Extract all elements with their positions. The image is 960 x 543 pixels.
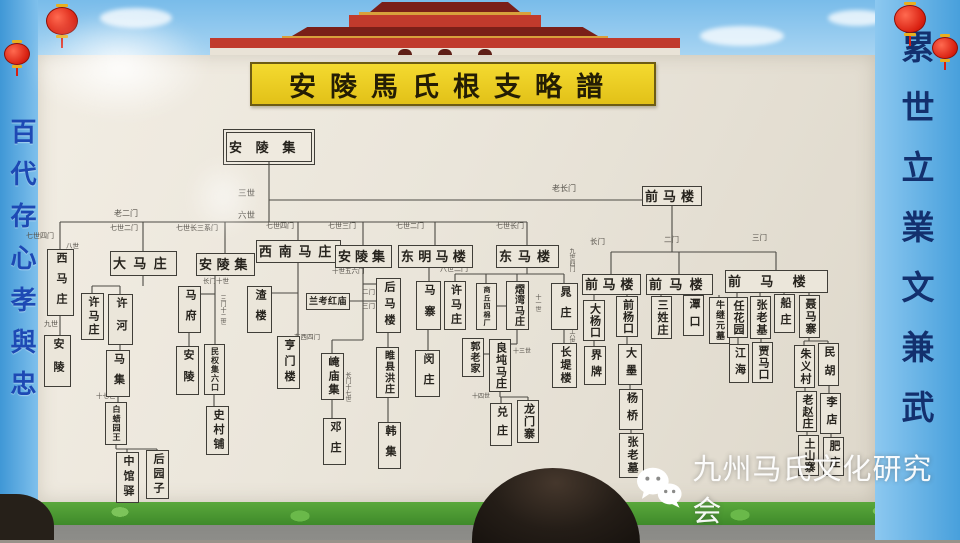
tree-node: 商丘四棉厂 — [476, 283, 497, 330]
tree-node: 白蜡园王 — [105, 402, 127, 445]
generation-label: 长门十七世 — [344, 372, 350, 402]
tree-node: 渣楼 — [247, 286, 272, 333]
tree-node: 前杨口 — [616, 296, 638, 337]
photo-of-genealogy-poster: { "title": "安陵馬氏根支略譜", "banners": { "lef… — [0, 0, 960, 540]
tree-node: 前马楼 — [725, 270, 828, 293]
generation-label: 十三世 — [513, 349, 531, 355]
tree-node: 安陵 — [176, 346, 199, 395]
generation-label: 七世二门 — [396, 223, 424, 230]
tree-node: 民胡 — [818, 343, 839, 386]
tree-node: 安陵 — [44, 335, 71, 387]
tree-node: 李店 — [820, 393, 841, 434]
watermark-text: 九州马氏文化研究会 — [693, 446, 960, 530]
tree-node: 马寨 — [416, 281, 441, 330]
tree-node: 后马楼 — [376, 278, 401, 333]
tree-node: 江海 — [729, 344, 749, 383]
poster-title: 安陵馬氏根支略譜 — [250, 62, 656, 106]
tree-node: 兰考红庙 — [306, 293, 350, 310]
tree-node: 许马庄 — [444, 281, 466, 330]
tree-node: 亨门楼 — [277, 336, 300, 389]
tree-node: 东明马楼 — [398, 245, 473, 268]
generation-label: 三门 — [752, 234, 767, 242]
tree-node: 东马楼 — [496, 245, 559, 268]
tree-node: 潭口 — [683, 295, 704, 336]
generation-label: 七世四门 — [26, 233, 54, 240]
tree-node: 西马庄 — [47, 249, 74, 316]
tree-node: 安陵集 — [226, 132, 312, 162]
generation-label: 二门 — [362, 290, 375, 297]
tree-node: 郭老家 — [462, 338, 484, 377]
tree-node: 马集 — [106, 350, 130, 397]
tree-node: 界牌 — [584, 346, 606, 385]
tree-node: 聂马寨 — [799, 295, 820, 338]
generation-label: 七世二门 — [110, 225, 138, 232]
generation-label: 二门 — [664, 236, 679, 244]
tree-node: 张老基 — [750, 296, 771, 339]
tree-node: 睢县洪庄 — [376, 347, 399, 398]
tree-node: 前马楼 — [582, 274, 641, 295]
tree-node: 晁庄 — [551, 283, 578, 330]
generation-label: 十四世 — [472, 394, 490, 400]
generation-label: 七世三门 — [328, 223, 356, 230]
tree-node: 韩集 — [378, 422, 401, 469]
generation-label: 十一世 — [534, 294, 540, 312]
tree-node: 前马楼 — [646, 274, 713, 295]
tree-node: 龙门寨 — [517, 400, 539, 443]
tree-node: 邓庄 — [323, 418, 346, 465]
tree-node: 大墨 — [618, 344, 642, 385]
generation-label: 三世 — [238, 189, 255, 198]
tree-node: 船庄 — [774, 294, 795, 333]
tree-node: 安陵集 — [335, 245, 392, 268]
tree-node: 老赵庄 — [796, 391, 817, 432]
tree-node: 熠湾马庄 — [506, 281, 529, 330]
tree-node: 前马楼 — [642, 186, 702, 206]
tree-node: 闵庄 — [415, 350, 440, 397]
generation-label: 七世长门 — [496, 223, 524, 230]
generation-label: 十世五六门 — [332, 269, 365, 276]
generation-label: 老长门 — [552, 185, 576, 193]
generation-label: 七世四门 — [266, 223, 294, 230]
tree-node: 大马庄 — [110, 251, 177, 276]
generation-label: 七世长三系门 — [176, 225, 218, 232]
tree-node: 马府 — [178, 286, 201, 333]
tree-node: 任花园 — [727, 297, 748, 338]
tree-node: 兑庄 — [490, 403, 512, 446]
tree-node: 朱义村 — [794, 345, 815, 388]
generation-label: 老二门 — [114, 210, 138, 218]
tree-node: 大杨口 — [583, 300, 605, 341]
generation-label: 六世 — [238, 211, 255, 220]
generation-label: 三门 — [362, 304, 375, 311]
tree-node: 后园子 — [146, 450, 169, 499]
tree-node: 民权集六口 — [204, 344, 225, 395]
tree-node: 许河 — [108, 294, 133, 345]
tree-node: 中馆驿 — [116, 452, 139, 503]
tree-node: 许马庄 — [81, 293, 104, 340]
wechat-watermark: 九州马氏文化研究会 — [636, 465, 960, 511]
generation-label: 九世四门 — [568, 248, 574, 272]
tree-node: 崦庙集 — [321, 353, 344, 400]
tree-node: 杨桥 — [619, 389, 643, 430]
tree-node: 良坉马庄 — [489, 339, 511, 392]
tree-node: 三姓庄 — [651, 296, 672, 339]
wechat-icon — [636, 467, 684, 509]
tree-node: 贾马口 — [752, 342, 773, 383]
tree-node: 长堤楼 — [552, 343, 577, 388]
generation-label: 九世 — [44, 321, 58, 328]
tree-node: 西南马庄 — [256, 240, 341, 263]
generation-label: 长门十世 — [203, 279, 229, 286]
tree-node: 史村铺 — [206, 406, 229, 455]
tree-node: 安陵集 — [196, 253, 255, 276]
generation-label: 三门十二世 — [219, 295, 225, 325]
generation-label: 长门 — [590, 238, 605, 246]
